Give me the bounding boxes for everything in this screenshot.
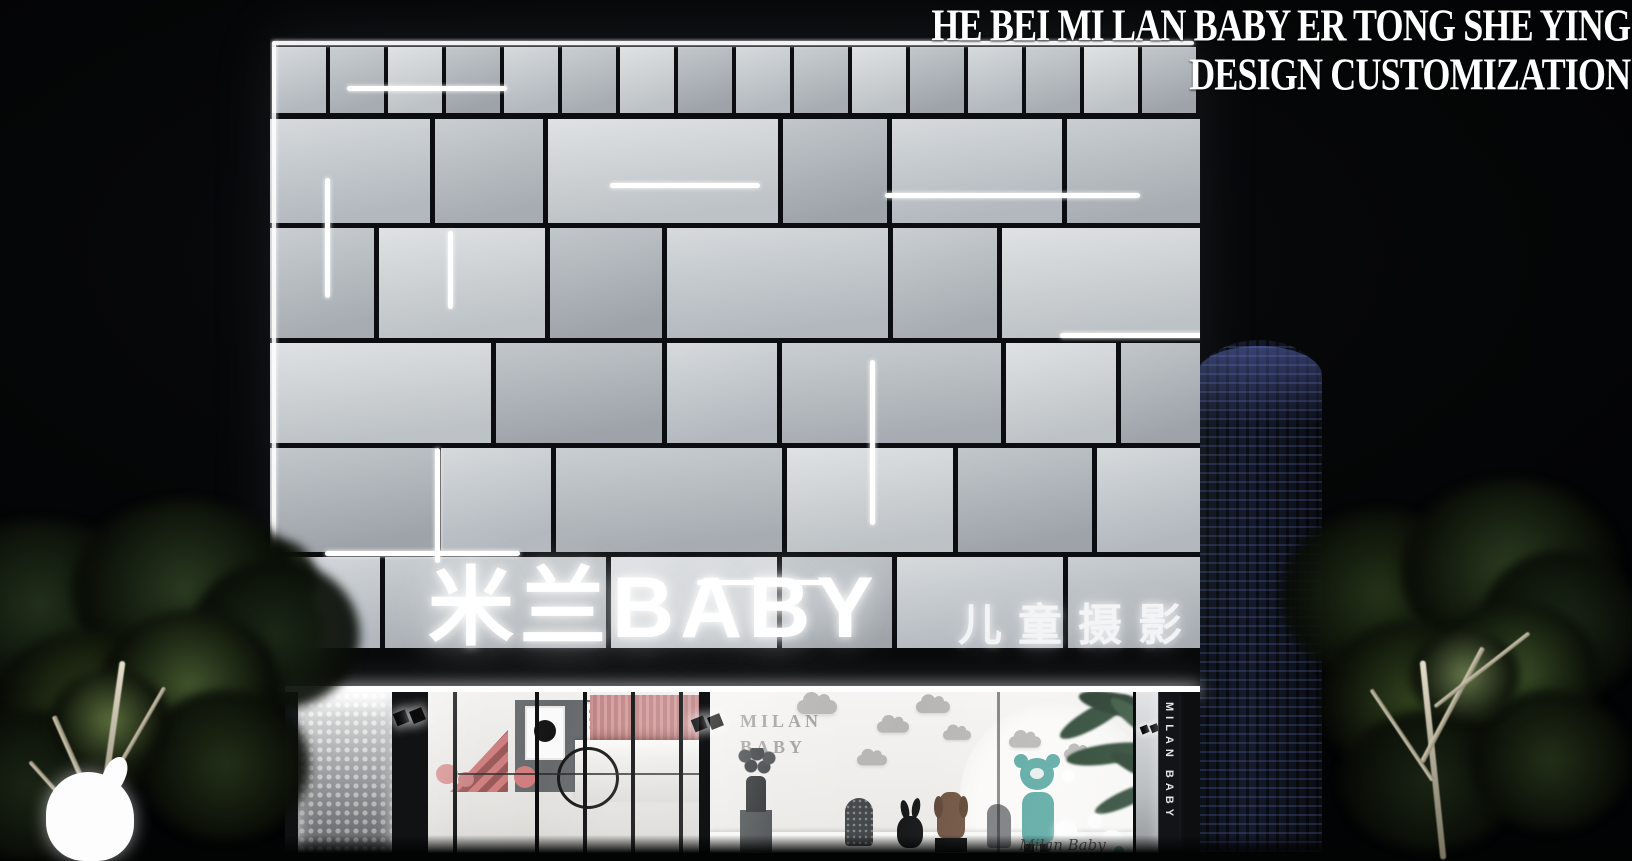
night-storefront-scene: 米兰BABY 儿童摄影 [0,0,1632,861]
pink-sphere [514,766,536,788]
cloud [916,701,950,713]
sphere-light [1062,770,1074,782]
bunny-ear [910,797,921,818]
interior-circle-poster [525,706,565,760]
rabbit-sculpture [46,772,134,861]
tree-right [1280,490,1632,861]
main-sign-text: 米兰BABY [428,558,880,658]
sphere-light [1088,814,1102,828]
facade-panel-grid [270,35,1200,648]
caption-line2: DESIGN CUSTOMIZATION [931,49,1630,98]
cloud [1009,736,1041,747]
sub-sign-text: 儿童摄影 [958,600,1198,652]
caption: HE BEI MI LAN BABY ER TONG SHE YING DESI… [931,0,1630,99]
teal-bear-ear [1046,754,1060,768]
storefront: MILAN BABY [285,648,1200,861]
teal-bear-ear [1014,754,1028,768]
glass-line-decal [458,773,699,775]
blade-sign-text: MILAN BABY [1163,702,1175,821]
teal-bear-muzzle [1030,768,1044,779]
cloud [943,730,971,740]
caption-line1: HE BEI MI LAN BABY ER TONG SHE YING [931,0,1630,49]
cloud [877,721,909,732]
cloud [797,700,837,714]
dog-ear [959,796,968,818]
building-facade [270,35,1200,648]
dog-ear [934,796,943,818]
figurine-saxophonist [746,776,766,812]
tower-top-glow [1196,346,1322,426]
cloud [857,755,887,766]
balloon-cluster [738,748,776,776]
glass-circle-decal [557,747,619,809]
